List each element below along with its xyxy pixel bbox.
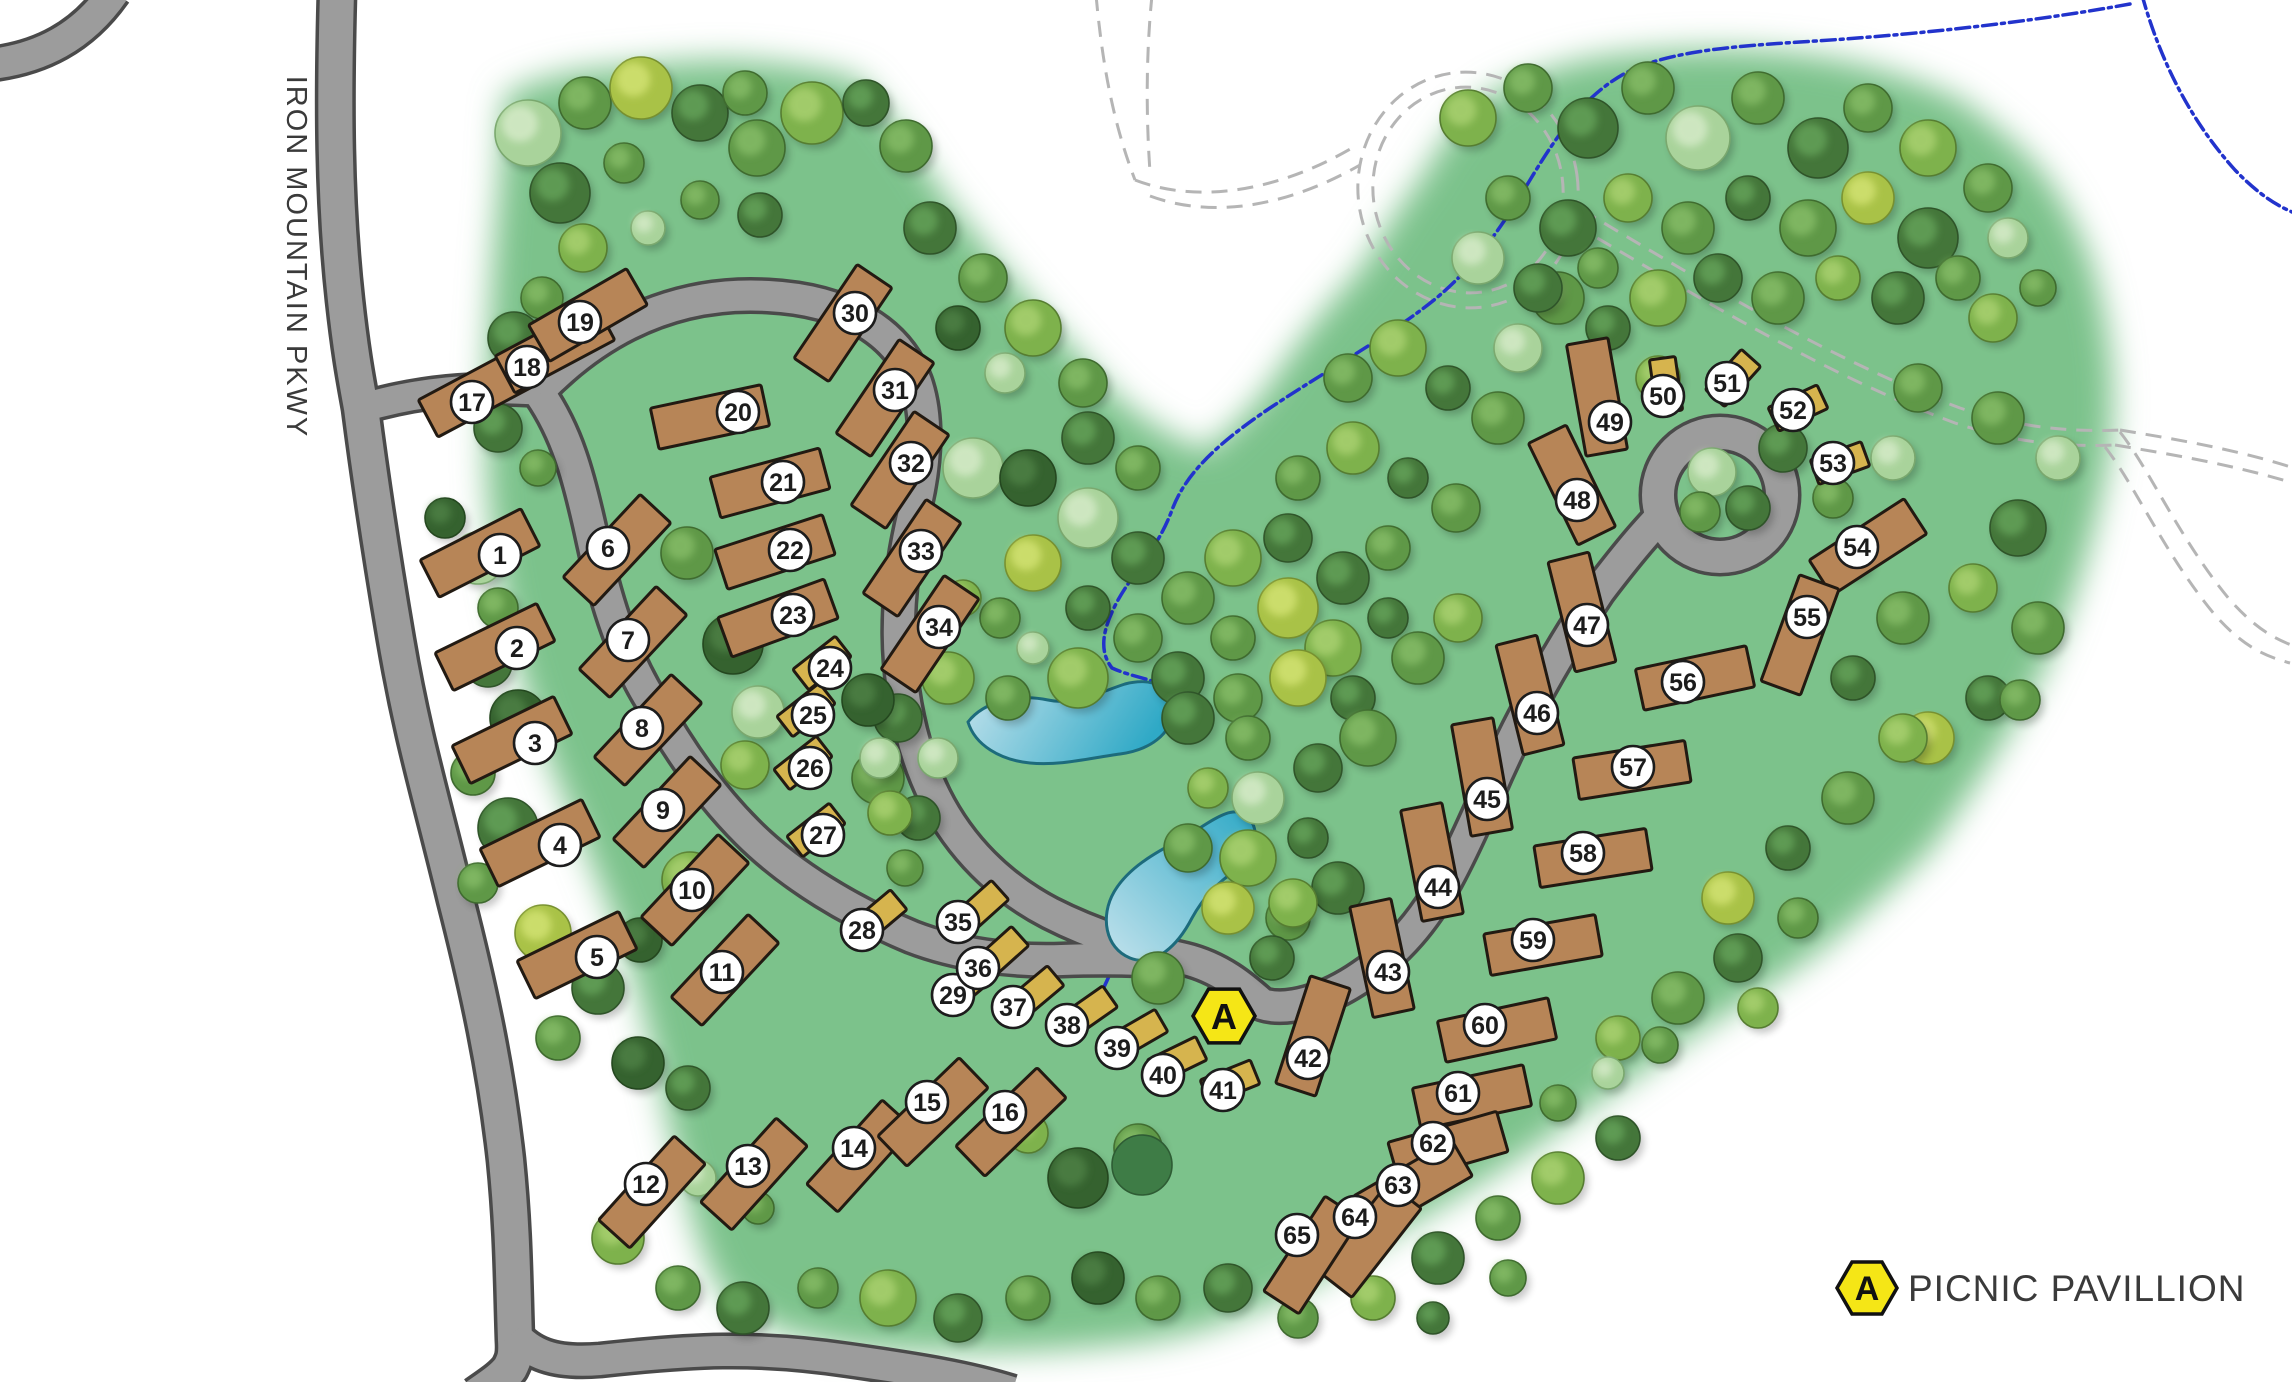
tree-highlight [1209,1268,1235,1294]
tree-highlight [1590,310,1614,334]
tree-highlight [726,745,752,771]
site-number-44: 44 [1424,874,1452,902]
site-number-42: 42 [1294,1045,1322,1073]
tree-highlight [984,601,1006,623]
tree-highlight [872,795,896,819]
tree-highlight [482,591,504,613]
tree-highlight [1940,260,1964,284]
tree-highlight [524,453,544,473]
tree-highlight [1600,1020,1624,1044]
tree-highlight [1904,213,1937,246]
site-number-49: 49 [1596,409,1624,437]
tree-highlight [1544,1088,1564,1108]
tree-highlight [802,1271,824,1293]
tree-highlight [1782,901,1804,923]
tree-highlight [940,310,964,334]
tree-highlight [1609,178,1635,204]
tree-highlight [1064,493,1097,526]
tree-highlight [1875,440,1899,464]
tree-highlight [666,531,695,560]
tree-highlight [502,106,538,142]
picnic-pavillion-marker-letter: A [1211,996,1237,1037]
tree-highlight [1707,876,1736,905]
tree-highlight [1311,625,1342,656]
tree-highlight [521,910,552,941]
site-number-34: 34 [925,614,953,642]
tree-highlight [1764,428,1790,454]
site-number-20: 20 [724,399,752,427]
tree-highlight [1730,180,1754,204]
tree-highlight [1849,88,1875,114]
tree-highlight [1219,678,1245,704]
tree-highlight [964,258,990,284]
tree-highlight [1397,636,1426,665]
site-number-39: 39 [1103,1035,1131,1063]
tree-highlight [909,206,938,235]
tree-highlight [949,443,982,476]
site-number-36: 36 [964,955,992,983]
tree-highlight [1264,583,1297,616]
tree-highlight [1054,1153,1087,1186]
site-number-4: 4 [553,832,567,860]
site-number-57: 57 [1619,754,1647,782]
tree-highlight [1794,123,1827,156]
site-number-52: 52 [1779,397,1807,425]
tree-highlight [1519,268,1545,294]
map-markers: A [1193,989,1255,1043]
tree-highlight [1693,452,1719,478]
tree-highlight [1954,568,1980,594]
site-number-8: 8 [635,715,649,743]
tree-highlight [848,84,873,109]
site-number-47: 47 [1573,612,1601,640]
site-number-61: 61 [1444,1080,1472,1108]
site-number-2: 2 [510,635,524,663]
tree-highlight [1011,305,1042,336]
tree-highlight [1346,715,1377,746]
tree-highlight [1667,206,1696,235]
tree-highlight [722,1286,751,1315]
tree-highlight [540,1020,564,1044]
tree-highlight [1770,830,1794,854]
tree-highlight [1480,1200,1504,1224]
tree-highlight [1392,461,1414,483]
tree-highlight [493,316,522,345]
tree-highlight [1376,325,1407,356]
tree-highlight [1269,518,1295,544]
tree-highlight [864,741,886,763]
tree-highlight [1137,956,1166,985]
site-number-13: 13 [734,1153,762,1181]
tree-highlight [1847,176,1876,205]
tree-highlight [1207,886,1236,915]
tree-highlight [1370,530,1394,554]
tree-highlight [1564,103,1597,136]
site-number-51: 51 [1713,370,1741,398]
tree-highlight [1672,111,1707,146]
legend-label: PICNIC PAVILLION [1908,1268,2245,1309]
tree-highlight [742,197,766,221]
tree-highlight [989,356,1011,378]
tree-highlight [1439,598,1465,624]
tree-highlight [1884,718,1910,744]
tree-highlight [1737,76,1766,105]
site-number-43: 43 [1374,959,1402,987]
site-number-3: 3 [528,730,542,758]
tree-highlight [1226,835,1257,866]
site-number-32: 32 [897,450,925,478]
tree-highlight [1157,656,1186,685]
site-number-60: 60 [1471,1012,1499,1040]
tree-highlight [885,124,914,153]
site-number-64: 64 [1341,1204,1369,1232]
tree-highlight [1280,460,1304,484]
site-number-5: 5 [590,944,604,972]
tree-highlight [1335,680,1359,704]
tree-highlight [1120,450,1144,474]
tree-highlight [1546,205,1577,236]
tree-highlight [1329,358,1355,384]
tree-highlight [1317,866,1346,895]
tree-highlight [678,90,709,121]
site-number-58: 58 [1569,840,1597,868]
site-number-23: 23 [779,602,807,630]
tree-highlight [1477,396,1506,425]
tree-highlight [616,62,650,96]
tree-highlight [1167,576,1196,605]
tree-highlight [1140,1280,1164,1304]
tree-highlight [1992,221,2014,243]
tree-highlight [1230,720,1254,744]
tree-highlight [1970,680,1994,704]
tree-highlight [1322,556,1351,585]
tree-highlight [1070,590,1094,614]
tree-highlight [787,87,821,121]
tree-highlight [1595,1060,1613,1078]
site-number-63: 63 [1384,1172,1412,1200]
site-number-22: 22 [776,537,804,565]
tree-highlight [1627,66,1656,95]
tree-highlight [1192,771,1214,793]
tree [1112,1135,1172,1195]
tree-highlight [525,281,548,304]
tree-highlight [1006,455,1037,486]
tree-highlight [1117,536,1146,565]
tree-highlight [1906,125,1937,156]
tree-highlight [617,1041,646,1070]
tree-highlight [1211,535,1242,566]
tree-highlight [685,184,706,205]
site-number-53: 53 [1819,450,1847,478]
tree-highlight [1417,1236,1446,1265]
tree-highlight [1254,940,1278,964]
tree-highlight [1276,655,1307,686]
site-number-45: 45 [1473,786,1501,814]
tree-highlight [1457,236,1486,265]
tree-highlight [1835,660,1859,684]
tree-highlight [1757,276,1786,305]
site-number-40: 40 [1149,1062,1177,1090]
site-number-56: 56 [1669,669,1697,697]
site-number-29: 29 [939,982,967,1010]
tree-highlight [564,81,593,110]
tree-highlight [1067,416,1096,445]
tree-highlight [1827,776,1856,805]
tree-highlight [670,1070,694,1094]
tree-highlight [1237,776,1266,805]
tree-highlight [1494,1263,1514,1283]
site-number-30: 30 [841,300,869,328]
tree-highlight [2024,273,2044,293]
tree-highlight [484,803,517,836]
tree-highlight [990,680,1014,704]
tree-highlight [1064,363,1090,389]
tree-highlight [1742,991,1764,1013]
site-number-14: 14 [840,1135,868,1163]
tree-highlight [536,168,569,201]
tree-highlight [1974,298,2000,324]
tree-highlight [1020,635,1038,653]
tree-highlight [1730,490,1754,514]
site-number-35: 35 [944,909,972,937]
tree-highlight [1636,275,1667,306]
tree-highlight [1119,618,1145,644]
site-number-21: 21 [769,469,797,497]
tree-highlight [737,690,766,719]
tree-highlight [1600,1120,1624,1144]
tree-highlight [1699,258,1725,284]
tree-highlight [1899,368,1925,394]
site-number-12: 12 [632,1171,660,1199]
site-number-65: 65 [1283,1222,1311,1250]
tree-highlight [1332,426,1361,455]
tree-highlight [1646,1030,1666,1050]
tree-highlight [564,228,590,254]
tree-highlight [1054,653,1087,686]
site-number-24: 24 [816,655,844,683]
tree-highlight [1977,396,2006,425]
tree-highlight [847,678,876,707]
site-number-11: 11 [709,959,736,987]
tree-highlight [1719,938,1745,964]
tree-highlight [1499,328,1525,354]
tree-highlight [1011,540,1042,571]
tree-highlight [1657,976,1686,1005]
site-number-46: 46 [1523,700,1551,728]
tree-highlight [1167,696,1196,725]
tree-highlight [2004,683,2026,705]
site-number-38: 38 [1053,1012,1081,1040]
site-number-10: 10 [678,877,706,905]
site-plan-map: 1234567891011121314151617181920212223242… [0,0,2292,1382]
tree-highlight [939,1298,965,1324]
site-number-27: 27 [809,822,837,850]
tree-highlight [1274,883,1300,909]
tree-highlight [1877,276,1906,305]
tree-highlight [1299,748,1325,774]
tree-highlight [1996,505,2027,536]
site-number-6: 6 [601,535,615,563]
site-number-48: 48 [1563,487,1591,515]
tree-highlight [608,146,630,168]
site-number-25: 25 [799,702,827,730]
site-number-26: 26 [796,755,824,783]
site-number-59: 59 [1519,927,1547,955]
tree-highlight [1786,205,1817,236]
site-number-9: 9 [656,797,670,825]
site-number-15: 15 [913,1089,941,1117]
site-number-16: 16 [991,1099,1019,1127]
site-number-31: 31 [881,377,909,405]
tree-highlight [429,501,451,523]
tree-highlight [462,866,484,888]
site-number-7: 7 [621,627,635,655]
tree-highlight [1582,251,1604,273]
tree-highlight [1446,95,1477,126]
tree-highlight [1969,168,1995,194]
tree-highlight [922,741,944,763]
site-number-18: 18 [513,354,541,382]
tree-highlight [634,214,653,233]
tree-highlight [1169,828,1195,854]
tree-highlight [1215,620,1239,644]
tree-highlight [735,125,766,156]
site-number-28: 28 [848,917,876,945]
road-label-iron-mountain-pkwy: IRON MOUNTAIN PKWY [280,76,312,439]
tree-highlight [891,853,911,873]
tree-highlight [2017,606,2046,635]
tree-highlight [1509,68,1535,94]
legend-hex-letter: A [1855,1270,1880,1308]
tree-highlight [866,1275,897,1306]
tree-highlight [1372,601,1394,623]
tree-highlight [1820,260,1844,284]
tree-highlight [2040,440,2064,464]
tree-highlight [1010,1280,1034,1304]
site-number-37: 37 [999,994,1027,1022]
tree-highlight [660,1270,684,1294]
tree-highlight [1430,370,1454,394]
site-number-54: 54 [1843,534,1871,562]
site-number-62: 62 [1419,1130,1447,1158]
site-number-1: 1 [493,542,507,570]
tree-highlight [1490,180,1514,204]
tree-highlight [1420,1305,1438,1323]
site-number-41: 41 [1209,1077,1237,1105]
tree-highlight [1437,488,1463,514]
tree-highlight [1537,1156,1566,1185]
site-number-19: 19 [566,309,594,337]
site-number-33: 33 [907,538,935,566]
site-number-50: 50 [1649,383,1677,411]
tree-highlight [1882,596,1911,625]
tree-highlight [1684,495,1706,517]
tree-highlight [1077,1256,1106,1285]
tree-highlight [727,75,751,99]
site-number-17: 17 [458,389,486,417]
tree-highlight [1292,821,1314,843]
site-number-55: 55 [1793,604,1821,632]
